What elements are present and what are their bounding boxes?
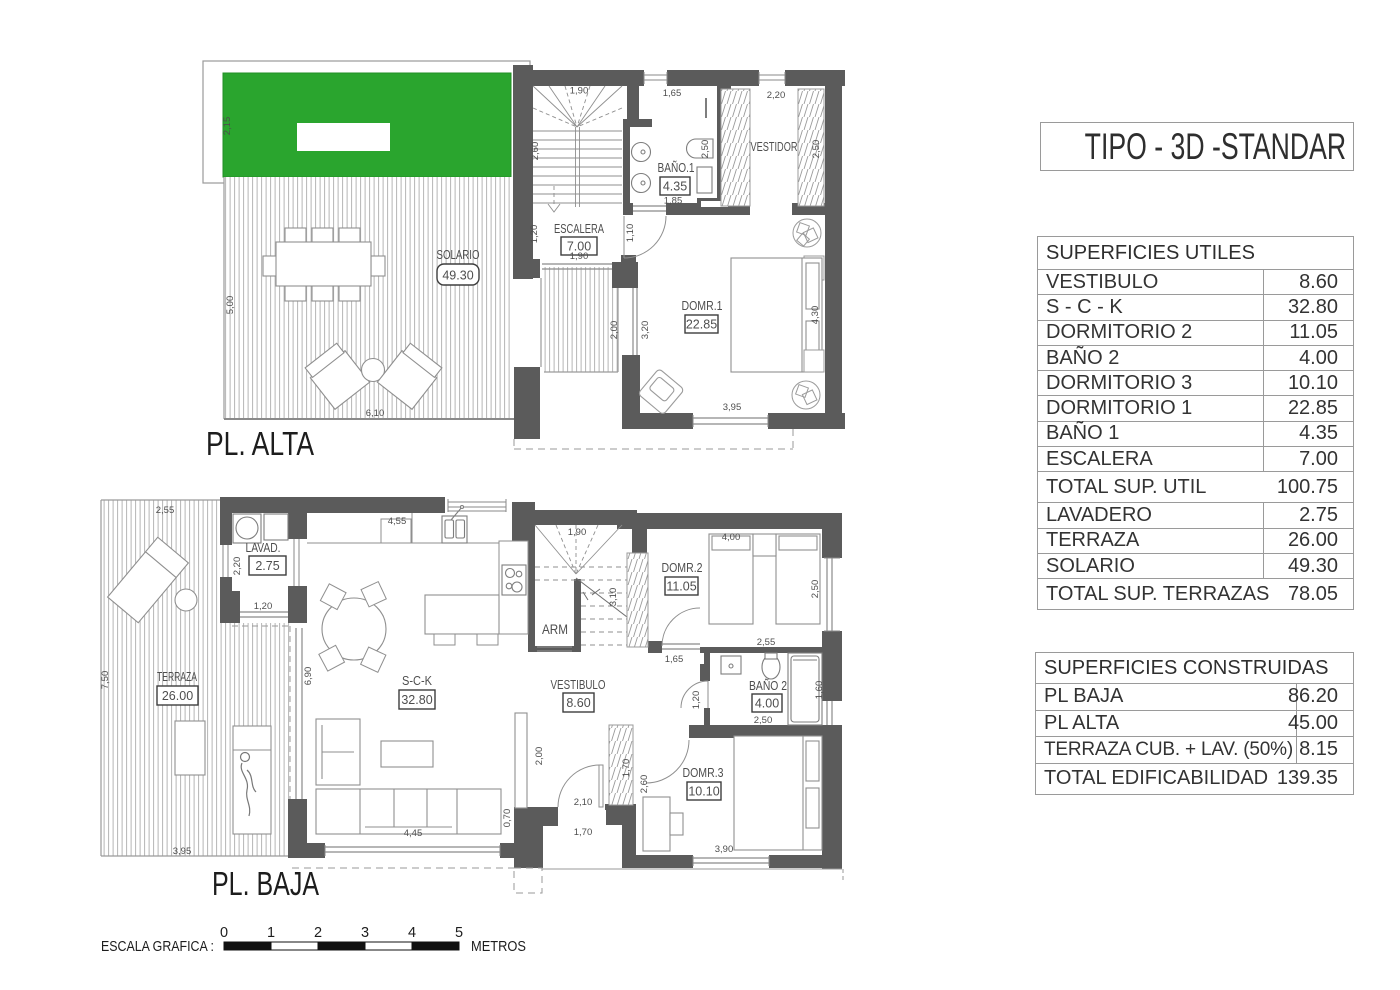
svg-text:METROS: METROS bbox=[471, 939, 526, 955]
svg-text:4,55: 4,55 bbox=[388, 516, 407, 527]
svg-text:1,65: 1,65 bbox=[665, 654, 684, 665]
svg-text:5,00: 5,00 bbox=[225, 296, 236, 315]
svg-text:2,55: 2,55 bbox=[757, 637, 776, 648]
svg-text:2,60: 2,60 bbox=[530, 142, 541, 161]
svg-text:1,65: 1,65 bbox=[663, 88, 682, 99]
svg-text:DOMR.1: DOMR.1 bbox=[682, 298, 723, 313]
svg-text:1,20: 1,20 bbox=[254, 601, 273, 612]
svg-text:32.80: 32.80 bbox=[401, 693, 432, 707]
svg-text:ESCALA GRAFICA :: ESCALA GRAFICA : bbox=[101, 939, 214, 955]
svg-text:1,10: 1,10 bbox=[625, 224, 636, 243]
svg-text:10.10: 10.10 bbox=[688, 785, 719, 799]
svg-text:1,60: 1,60 bbox=[814, 681, 825, 700]
svg-text:TERRAZA: TERRAZA bbox=[157, 669, 197, 684]
svg-text:DOMR.3: DOMR.3 bbox=[683, 765, 724, 780]
svg-text:2,55: 2,55 bbox=[156, 505, 175, 516]
svg-text:3,95: 3,95 bbox=[173, 846, 192, 857]
svg-text:VESTIDOR: VESTIDOR bbox=[751, 139, 798, 154]
svg-text:3,10: 3,10 bbox=[608, 588, 619, 607]
svg-text:4,45: 4,45 bbox=[404, 828, 423, 839]
svg-text:4: 4 bbox=[408, 925, 416, 941]
svg-text:VESTIBULO: VESTIBULO bbox=[551, 677, 606, 692]
svg-text:2,20: 2,20 bbox=[767, 90, 786, 101]
svg-text:2,00: 2,00 bbox=[609, 321, 620, 340]
svg-text:SOLARIO: SOLARIO bbox=[437, 247, 480, 262]
svg-text:6,10: 6,10 bbox=[366, 408, 385, 419]
svg-text:2,00: 2,00 bbox=[534, 747, 545, 766]
svg-text:2: 2 bbox=[314, 925, 322, 941]
svg-text:2.75: 2.75 bbox=[255, 559, 279, 573]
svg-text:0,70: 0,70 bbox=[502, 809, 513, 828]
svg-text:11.05: 11.05 bbox=[666, 580, 696, 594]
svg-text:4.35: 4.35 bbox=[663, 180, 687, 194]
svg-text:2,10: 2,10 bbox=[574, 797, 593, 808]
svg-text:2,15: 2,15 bbox=[222, 117, 233, 136]
svg-text:1,20: 1,20 bbox=[691, 691, 702, 710]
svg-text:3,95: 3,95 bbox=[723, 402, 742, 413]
svg-text:2,50: 2,50 bbox=[700, 140, 711, 159]
svg-text:BAÑO 2: BAÑO 2 bbox=[749, 678, 787, 693]
svg-text:6,90: 6,90 bbox=[303, 667, 314, 686]
svg-text:1,20: 1,20 bbox=[529, 225, 540, 244]
svg-text:1: 1 bbox=[267, 925, 275, 941]
svg-text:4,00: 4,00 bbox=[722, 532, 741, 543]
svg-text:22.85: 22.85 bbox=[686, 318, 717, 332]
svg-text:DOMR.2: DOMR.2 bbox=[662, 560, 703, 575]
svg-text:ESCALERA: ESCALERA bbox=[554, 221, 604, 236]
svg-text:7,50: 7,50 bbox=[100, 671, 111, 690]
svg-text:3,20: 3,20 bbox=[640, 321, 651, 340]
svg-text:3,90: 3,90 bbox=[715, 844, 734, 855]
svg-text:PL. ALTA: PL. ALTA bbox=[206, 425, 314, 462]
svg-text:4.00: 4.00 bbox=[755, 697, 779, 711]
svg-text:2,50: 2,50 bbox=[810, 580, 821, 599]
svg-text:1,90: 1,90 bbox=[570, 86, 589, 97]
svg-text:1,90: 1,90 bbox=[570, 251, 589, 262]
svg-text:5: 5 bbox=[455, 925, 463, 941]
svg-text:3: 3 bbox=[361, 925, 369, 941]
svg-text:LAVAD.: LAVAD. bbox=[246, 541, 281, 555]
svg-text:BAÑO.1: BAÑO.1 bbox=[658, 160, 695, 175]
svg-text:2,50: 2,50 bbox=[754, 715, 773, 726]
svg-text:2,60: 2,60 bbox=[639, 775, 650, 794]
svg-text:8.60: 8.60 bbox=[566, 696, 590, 710]
svg-text:2,20: 2,20 bbox=[232, 557, 243, 576]
svg-text:PL. BAJA: PL. BAJA bbox=[212, 865, 319, 902]
svg-text:4,30: 4,30 bbox=[810, 306, 821, 325]
svg-text:1,70: 1,70 bbox=[574, 827, 593, 838]
svg-text:1,90: 1,90 bbox=[568, 527, 587, 538]
svg-text:0: 0 bbox=[220, 925, 228, 941]
svg-text:1,85: 1,85 bbox=[664, 196, 683, 207]
svg-text:1,70: 1,70 bbox=[621, 759, 632, 778]
svg-text:2,50: 2,50 bbox=[811, 140, 822, 159]
svg-text:26.00: 26.00 bbox=[162, 689, 193, 703]
svg-text:S-C-K: S-C-K bbox=[402, 673, 432, 688]
svg-text:ARM: ARM bbox=[542, 622, 568, 637]
svg-text:49.30: 49.30 bbox=[442, 269, 473, 283]
